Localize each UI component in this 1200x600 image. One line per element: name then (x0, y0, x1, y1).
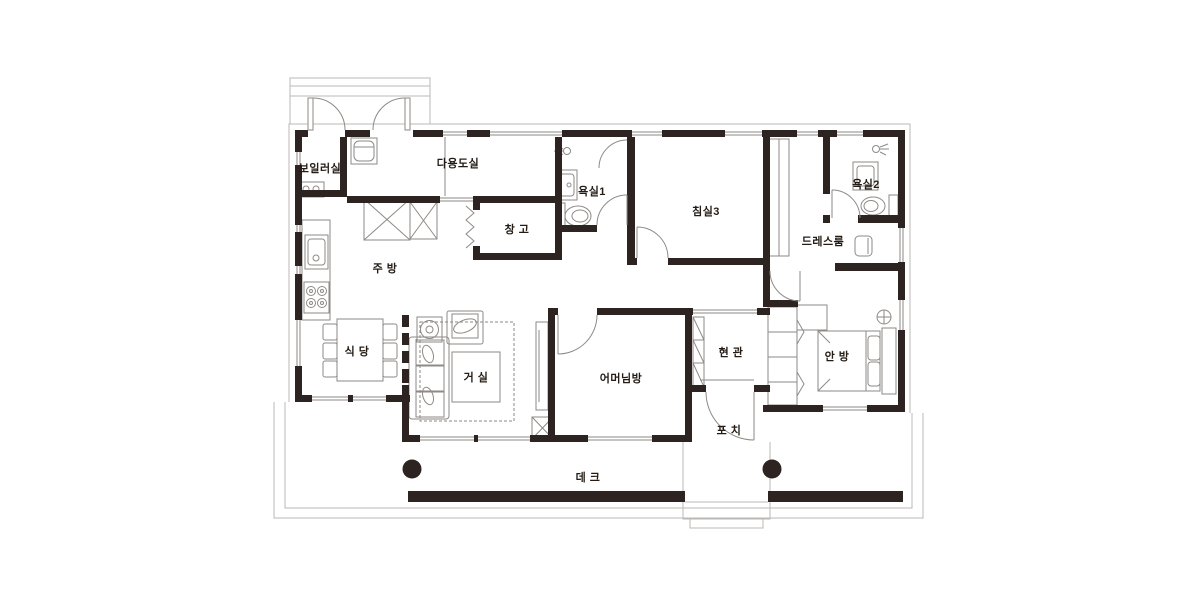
room-label-mothers: 어머님방 (600, 370, 642, 386)
room-label-deck: 데 크 (576, 469, 601, 485)
room-label-storage: 창 고 (505, 221, 530, 237)
room-label-dining: 식 당 (345, 343, 370, 359)
room-label-bath1: 욕실1 (578, 183, 606, 199)
windows (297, 132, 903, 440)
room-label-entrance: 현 관 (719, 344, 744, 360)
storage-folding-door (466, 206, 474, 248)
dressroom-stool (855, 236, 872, 256)
room-label-master: 안 방 (825, 348, 850, 364)
floor-plan-drawing (0, 0, 1200, 600)
deck-post (763, 460, 782, 479)
room-label-kitchen: 주 방 (373, 260, 398, 276)
closet-bedroom3-dressroom (769, 139, 789, 256)
room-label-porch: 포 치 (717, 422, 742, 438)
deck-post (403, 460, 422, 479)
room-label-boiler: 보일러실 (299, 160, 341, 176)
utility-washer (351, 138, 377, 164)
room-label-living: 거 실 (464, 369, 489, 385)
walls (295, 130, 905, 442)
floor-plan: 보일러실 다용도실 욕실1 창 고 침실3 욕실2 드레스룸 주 방 식 당 거… (0, 0, 1200, 600)
room-label-dress: 드레스룸 (802, 233, 844, 249)
room-label-utility: 다용도실 (437, 155, 479, 171)
room-label-bedroom3: 침실3 (692, 203, 720, 219)
room-label-bath2: 욕실2 (852, 176, 880, 192)
deck-structure (403, 460, 904, 503)
